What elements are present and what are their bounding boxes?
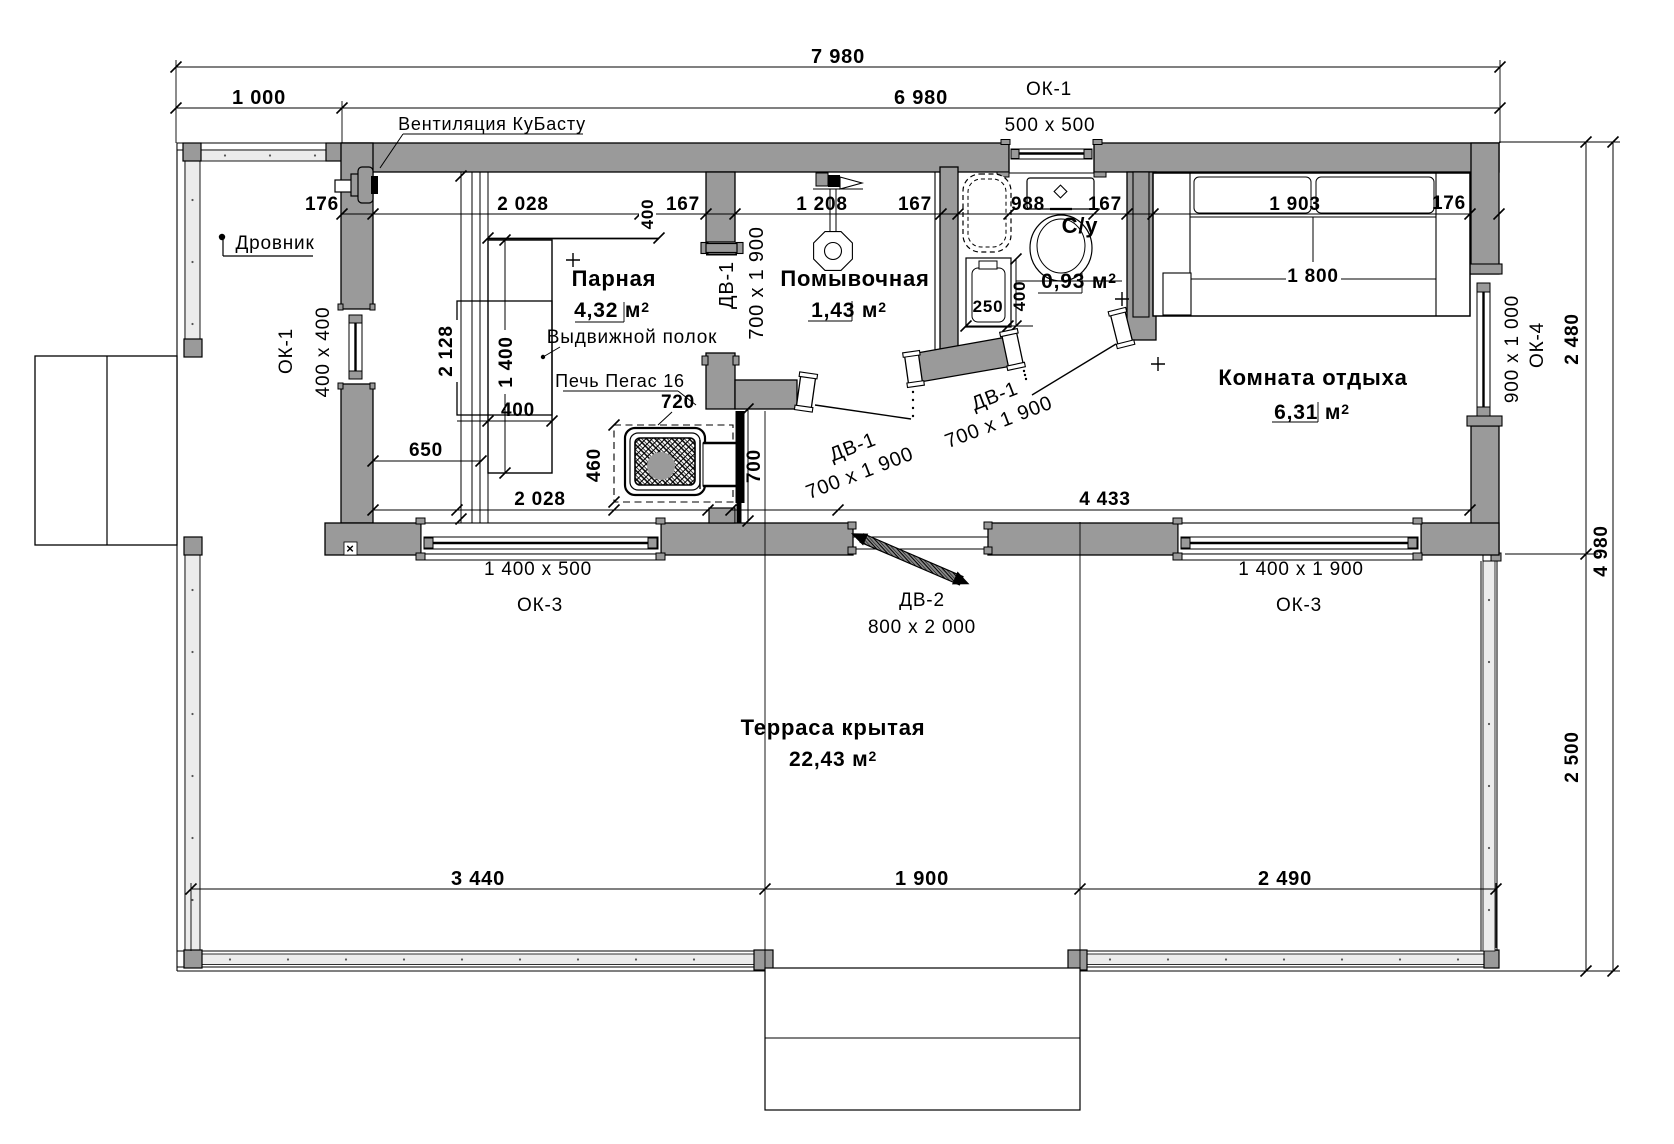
svg-text:1 400 x 1 900: 1 400 x 1 900: [1238, 559, 1364, 580]
svg-text:0,93 м2: 0,93 м2: [1041, 270, 1117, 293]
svg-text:2 028: 2 028: [514, 489, 566, 510]
svg-text:460: 460: [584, 448, 605, 482]
svg-text:7 980: 7 980: [811, 46, 865, 68]
svg-text:×: ×: [346, 541, 354, 556]
svg-text:2 500: 2 500: [1562, 731, 1583, 783]
svg-text:400: 400: [638, 199, 657, 230]
svg-text:ОК-3: ОК-3: [1276, 595, 1322, 616]
svg-text:Печь Пегас 16: Печь Пегас 16: [555, 371, 685, 391]
svg-text:22,43 м2: 22,43 м2: [789, 748, 877, 771]
svg-text:ОК-3: ОК-3: [517, 595, 563, 616]
svg-text:4,32 м2: 4,32 м2: [574, 299, 650, 322]
svg-text:700 x 1 900: 700 x 1 900: [746, 226, 768, 339]
svg-text:Вентиляция КуБасту: Вентиляция КуБасту: [398, 114, 586, 134]
svg-text:2 480: 2 480: [1562, 313, 1583, 365]
svg-text:4 433: 4 433: [1079, 489, 1131, 510]
svg-text:650: 650: [409, 440, 443, 461]
svg-text:1 400: 1 400: [496, 336, 517, 388]
svg-text:С/у: С/у: [1062, 213, 1099, 238]
svg-text:1 800: 1 800: [1287, 266, 1339, 287]
svg-text:400: 400: [1010, 281, 1029, 312]
svg-text:1,43 м2: 1,43 м2: [811, 299, 887, 322]
svg-text:2 128: 2 128: [436, 325, 457, 377]
svg-text:1 903: 1 903: [1269, 194, 1321, 215]
svg-text:250: 250: [973, 297, 1004, 316]
svg-text:ДВ-1: ДВ-1: [716, 261, 738, 309]
svg-text:ОК-4: ОК-4: [1527, 322, 1548, 368]
svg-text:ОК-1: ОК-1: [276, 328, 297, 374]
svg-text:Помывочная: Помывочная: [780, 266, 929, 291]
svg-text:988: 988: [1011, 194, 1045, 215]
svg-text:176: 176: [305, 194, 339, 215]
svg-text:700: 700: [744, 449, 765, 483]
svg-text:Терраса крытая: Терраса крытая: [741, 715, 926, 740]
svg-text:ДВ-2: ДВ-2: [899, 590, 945, 611]
svg-text:2 490: 2 490: [1258, 868, 1312, 890]
svg-text:176: 176: [1432, 193, 1466, 214]
svg-text:167: 167: [1088, 194, 1122, 215]
svg-text:6,31 м2: 6,31 м2: [1274, 401, 1350, 424]
svg-text:Парная: Парная: [572, 266, 657, 291]
svg-text:900 x 1 000: 900 x 1 000: [1502, 295, 1523, 403]
svg-text:400 x 400: 400 x 400: [313, 307, 334, 398]
svg-text:1 400 x 500: 1 400 x 500: [484, 559, 592, 580]
svg-text:500 x 500: 500 x 500: [1005, 115, 1096, 136]
svg-text:400: 400: [501, 400, 535, 421]
svg-text:1 000: 1 000: [232, 87, 286, 109]
svg-text:Комната отдыха: Комната отдыха: [1218, 365, 1407, 390]
svg-text:6 980: 6 980: [894, 87, 948, 109]
svg-text:Дровник: Дровник: [235, 233, 314, 254]
svg-text:4 980: 4 980: [1591, 525, 1612, 577]
svg-text:ОК-1: ОК-1: [1026, 79, 1072, 100]
svg-text:3 440: 3 440: [451, 868, 505, 890]
svg-text:167: 167: [666, 194, 700, 215]
svg-text:Выдвижной полок: Выдвижной полок: [547, 327, 717, 348]
svg-text:1 900: 1 900: [895, 868, 949, 890]
svg-text:720: 720: [661, 392, 695, 413]
svg-text:167: 167: [898, 194, 932, 215]
svg-text:2 028: 2 028: [497, 194, 549, 215]
svg-text:800 x 2 000: 800 x 2 000: [868, 617, 976, 638]
svg-text:1 208: 1 208: [796, 194, 848, 215]
